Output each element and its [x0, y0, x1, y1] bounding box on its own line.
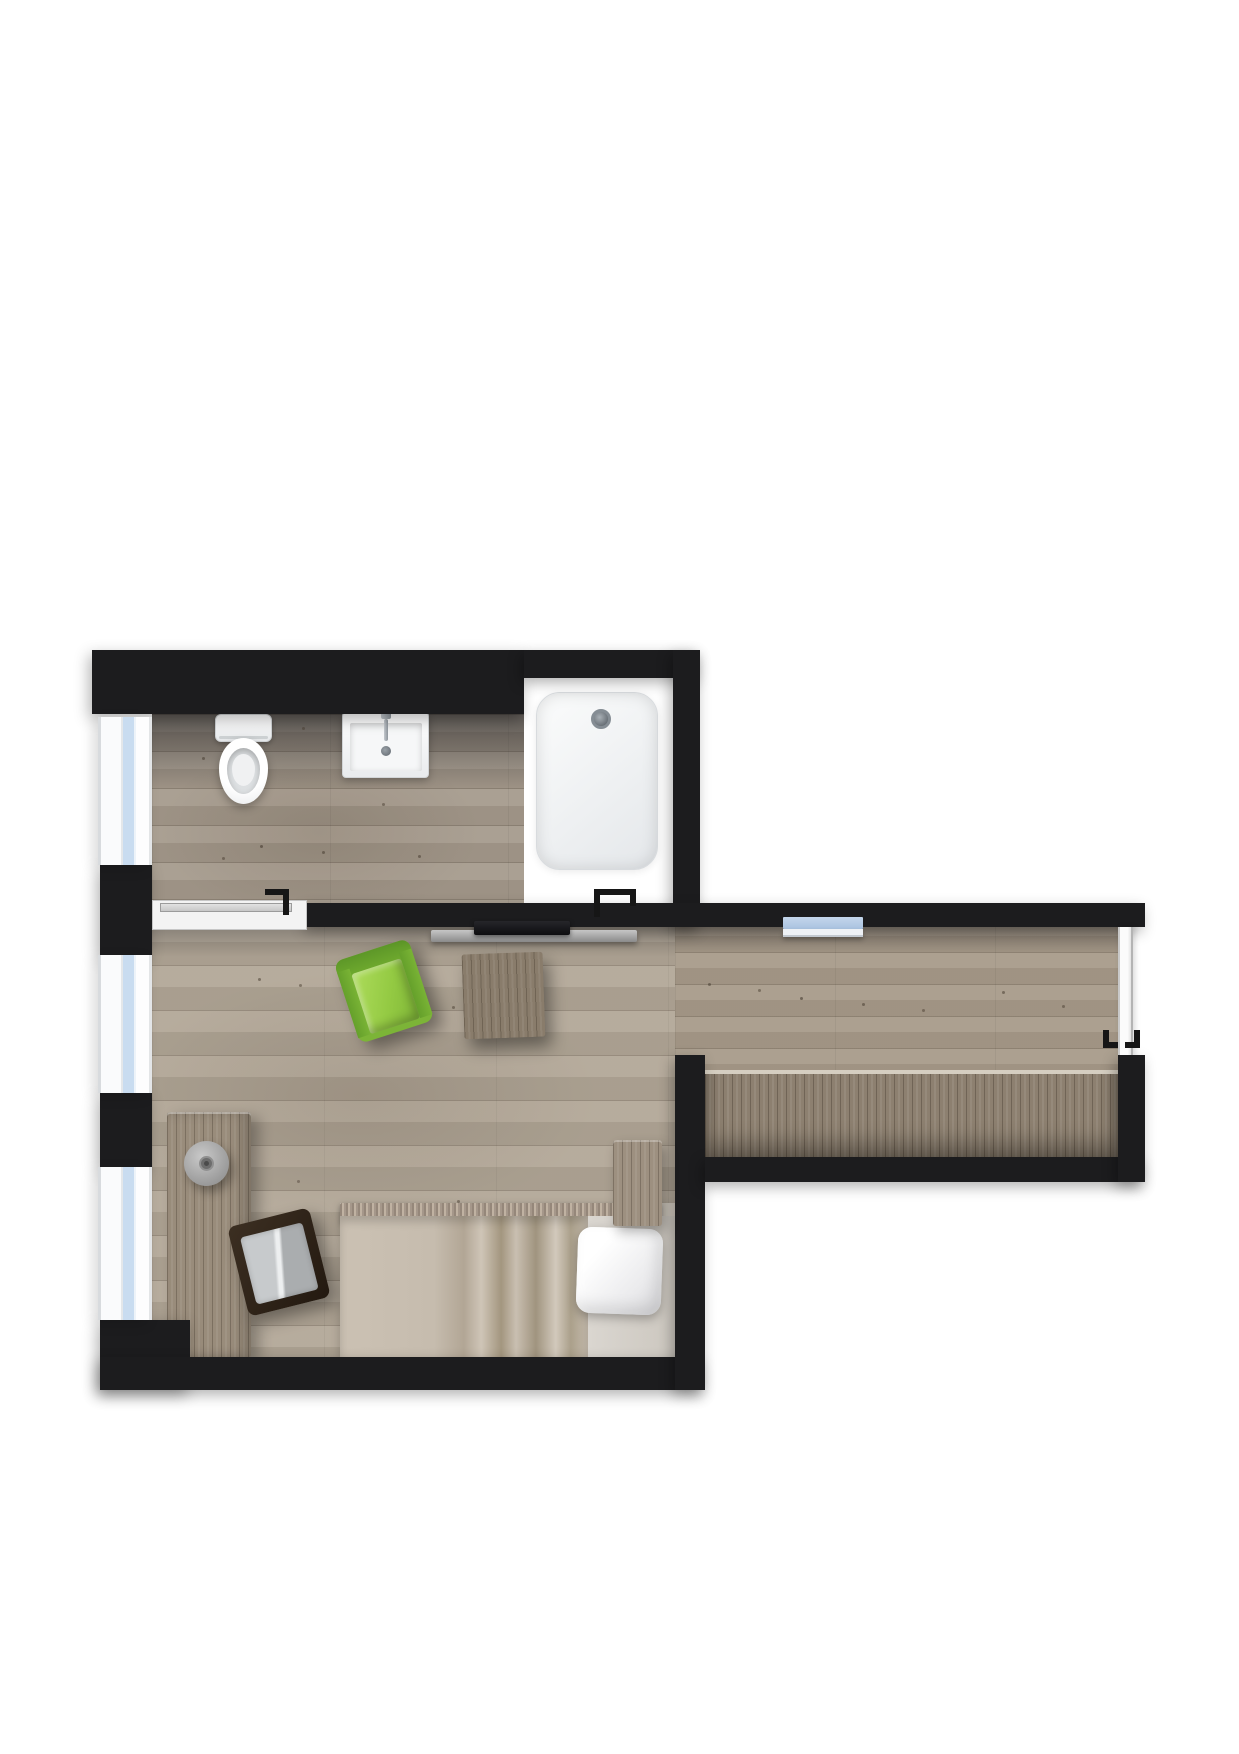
hallway-wall-shelf-ledge — [783, 929, 863, 937]
shower-door-marker-left — [594, 895, 600, 917]
entrance-door-leaf — [1118, 927, 1133, 1055]
stool — [184, 1141, 229, 1186]
hallway-floor-specks — [800, 997, 803, 1000]
desk-chair-cushion — [240, 1222, 319, 1304]
bathroom-floor-specks — [260, 845, 263, 848]
toilet-bowl-inner — [227, 748, 260, 794]
bed-pillow — [576, 1227, 664, 1316]
shower-door-marker-right — [630, 895, 636, 906]
hallway-wall-shelf — [783, 917, 863, 929]
wall-bottom — [100, 1357, 705, 1390]
headboard-cabinet — [613, 1140, 662, 1226]
entrance-door-marker-right-h — [1125, 1042, 1140, 1048]
wall-left-pier-2 — [100, 1093, 152, 1167]
bed-duvet — [340, 1216, 588, 1358]
bathroom-door-panel — [160, 903, 292, 912]
window-2 — [98, 955, 152, 1093]
washbasin-drain — [381, 746, 391, 756]
bathroom-floor — [152, 714, 524, 910]
shower-drain — [591, 709, 611, 729]
toilet — [215, 714, 272, 806]
wall-right-block — [1118, 1055, 1145, 1182]
entrance-door-marker-left-h — [1103, 1042, 1118, 1048]
wall-top-bathroom — [92, 650, 524, 714]
page-background — [0, 0, 1239, 1754]
toilet-bowl-hole — [232, 754, 255, 786]
shower-tray — [536, 692, 658, 870]
stool-center-dot — [204, 1161, 209, 1166]
built-in-wardrobe — [705, 1070, 1118, 1158]
bathroom-door-frame-marker-v — [283, 889, 289, 915]
window-3 — [98, 1167, 152, 1320]
washbasin — [342, 712, 429, 778]
wall-divider — [307, 903, 1145, 927]
wall-left-pier-1 — [100, 865, 152, 955]
toilet-bowl — [219, 738, 268, 804]
tv — [474, 921, 570, 935]
window-1 — [98, 717, 152, 865]
floor-plan — [0, 0, 1239, 1754]
faucet-stem — [384, 719, 388, 741]
wall-main-room-right — [675, 1055, 705, 1390]
side-table — [462, 952, 546, 1040]
wall-hallway-bottom — [705, 1157, 1145, 1182]
wall-bathroom-right — [673, 650, 700, 927]
